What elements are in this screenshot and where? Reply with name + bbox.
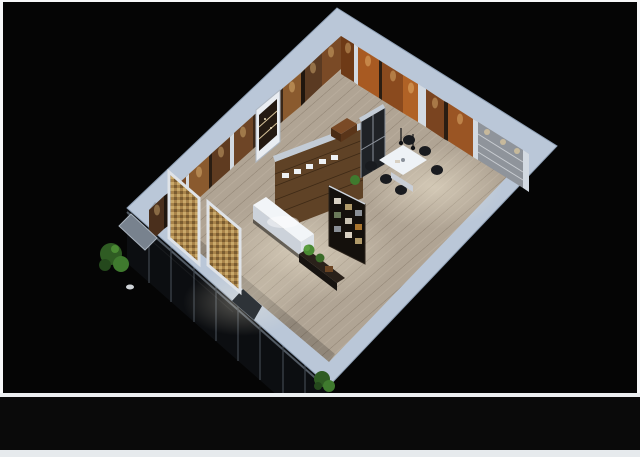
- render-canvas: [3, 2, 637, 393]
- presentation-sheet: 欧派®地板 Gnu Wood 中 国 家 庭 一 个 信 赖 店面地址：贵 州 …: [0, 0, 640, 457]
- showroom-render-image: [3, 2, 637, 393]
- footer-bar: 欧派®地板 Gnu Wood 中 国 家 庭 一 个 信 赖 店面地址：贵 州 …: [0, 397, 640, 450]
- bottom-border-strip: [0, 450, 640, 457]
- indoor-plant: [350, 175, 360, 185]
